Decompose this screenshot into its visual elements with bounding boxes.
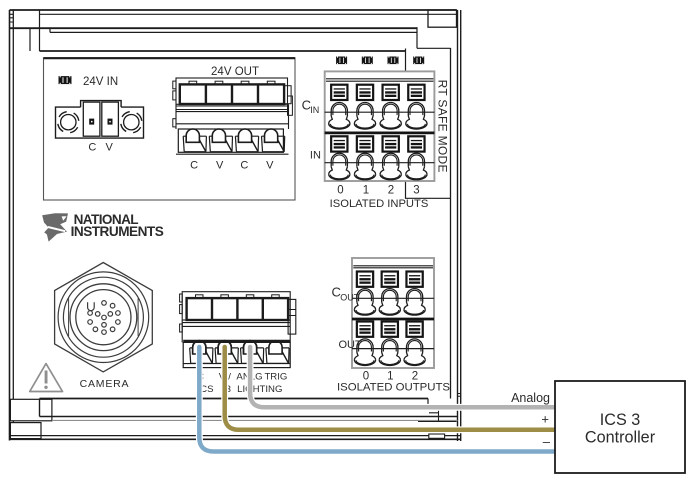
svg-text:OUT: OUT [340,293,360,303]
svg-text:INSTRUMENTS: INSTRUMENTS [71,224,164,239]
svg-text:ICS 3: ICS 3 [600,411,641,429]
svg-text:1: 1 [363,185,369,197]
svg-text:RT SAFE MODE: RT SAFE MODE [436,80,450,173]
svg-text:OUT: OUT [339,339,363,351]
svg-text:CAMERA: CAMERA [80,378,130,390]
svg-text:V: V [216,160,224,172]
svg-text:/: / [228,371,231,382]
svg-text:–: – [543,434,551,449]
svg-text:C: C [240,160,248,172]
svg-text:IN: IN [310,150,321,162]
svg-text:Controller: Controller [585,429,656,447]
svg-text:C: C [88,142,96,154]
svg-text:IN: IN [310,105,319,115]
svg-text:3: 3 [413,185,419,197]
svg-text:+: + [541,411,549,426]
svg-text:V: V [266,160,274,172]
svg-text:LIGHTING: LIGHTING [237,384,282,395]
svg-text:ISOLATED OUTPUTS: ISOLATED OUTPUTS [337,382,450,394]
svg-text:Analog: Analog [511,391,550,405]
svg-text:2: 2 [388,185,394,197]
svg-text:24V IN: 24V IN [83,76,118,88]
svg-text:ISOLATED INPUTS: ISOLATED INPUTS [330,198,429,210]
svg-text:0: 0 [337,185,343,197]
svg-text:V: V [106,142,114,154]
svg-text:24V OUT: 24V OUT [211,66,259,78]
svg-text:TRIG: TRIG [264,371,287,382]
svg-text:C: C [190,160,198,172]
